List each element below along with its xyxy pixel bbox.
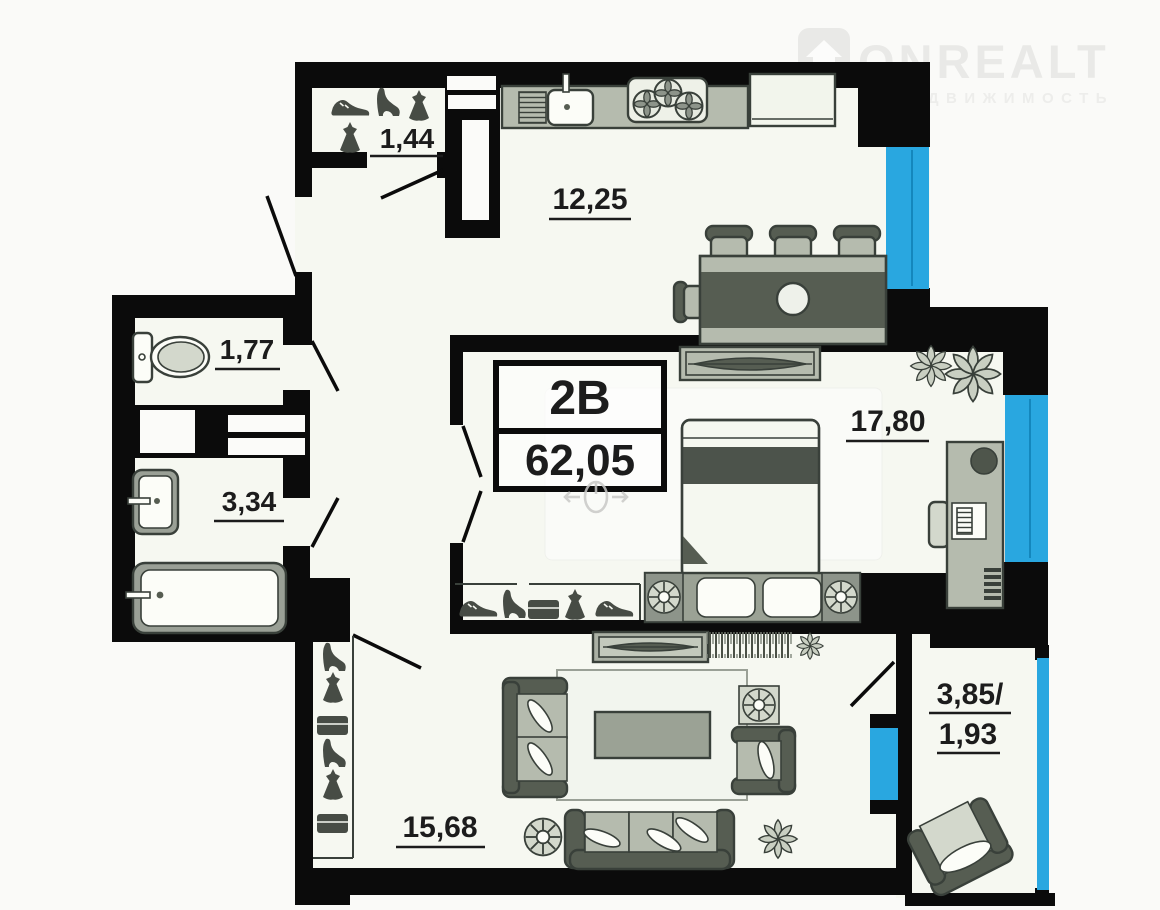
- plan-code: 2В: [549, 372, 610, 425]
- shelf-radiator: [705, 632, 793, 658]
- fridge: [750, 74, 835, 126]
- computer-icon: [952, 503, 986, 539]
- coffee-table: [595, 712, 710, 758]
- balcony-side-window: [1037, 658, 1049, 890]
- bed-bench: [645, 573, 860, 622]
- plant-icon: [911, 346, 952, 387]
- balcony-door-window: [870, 728, 898, 800]
- svg-text:15,68: 15,68: [402, 811, 477, 844]
- svg-text:1,93: 1,93: [939, 718, 997, 751]
- total-area: 62,05: [525, 436, 635, 485]
- tv-console: [593, 632, 708, 662]
- bathroom-area-label: 3,34: [214, 486, 284, 521]
- svg-text:3,85/: 3,85/: [937, 678, 1004, 711]
- unit-info-box: 2В 62,05: [496, 363, 664, 489]
- plant-icon: [945, 346, 1000, 401]
- rosette-icon: [648, 581, 680, 613]
- sink-bowl: [548, 90, 593, 125]
- bathtub: [126, 563, 286, 633]
- rosette-icon: [825, 581, 857, 613]
- stool: [971, 448, 997, 474]
- dining-table: [700, 256, 886, 344]
- bedroom-window: [1005, 395, 1048, 562]
- plant-icon: [759, 820, 797, 858]
- svg-text:3,34: 3,34: [222, 486, 277, 517]
- fan-icon: [743, 689, 775, 721]
- floorplan-canvas: ONREALT НЕДВИЖИМОСТЬ: [0, 0, 1160, 910]
- floorplan-page: ONREALT НЕДВИЖИМОСТЬ: [0, 0, 1160, 910]
- dresser: [680, 347, 820, 380]
- armchair: [732, 727, 795, 794]
- side-table: [739, 686, 779, 724]
- double-bed: [682, 420, 819, 578]
- closet-area-label: 1,44: [370, 123, 443, 156]
- svg-text:1,77: 1,77: [220, 334, 275, 365]
- kitchen-window: [886, 147, 929, 289]
- washbasin: [128, 470, 178, 534]
- toilet-area-label: 1,77: [215, 334, 280, 369]
- svg-text:12,25: 12,25: [552, 183, 627, 216]
- loveseat: [503, 678, 567, 797]
- svg-text:1,44: 1,44: [380, 123, 435, 154]
- plant-icon: [797, 633, 823, 659]
- kitchen-area-label: 12,25: [549, 183, 631, 219]
- svg-text:17,80: 17,80: [850, 405, 925, 438]
- bedroom-area-label: 17,80: [846, 405, 929, 441]
- sink-drainboard: [519, 92, 546, 123]
- stove: [628, 78, 707, 122]
- fan-icon: [525, 819, 562, 856]
- living-area-label: 15,68: [396, 811, 485, 847]
- sofa: [565, 810, 734, 869]
